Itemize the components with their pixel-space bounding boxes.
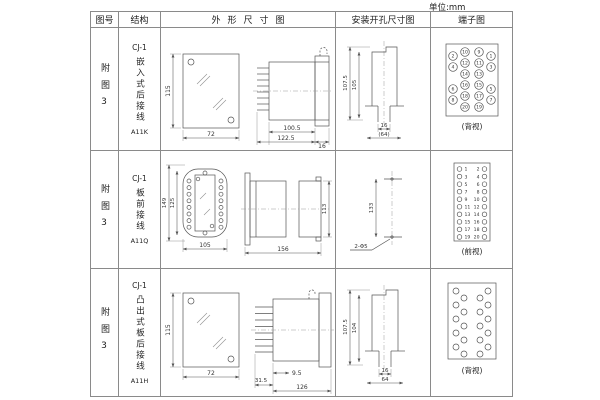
dim-outer-height-row1: 107.5	[343, 75, 349, 91]
terminal-pin	[482, 197, 487, 202]
outline-drawing-row2: 149 125 105 156 113	[161, 151, 335, 268]
terminal-number: 9	[478, 50, 481, 56]
terminal-number: 2	[452, 54, 455, 60]
terminal-pin	[482, 227, 487, 232]
dim-total-depth-row1: 122.5	[277, 135, 294, 142]
terminal-pin	[482, 167, 487, 172]
cutout-outline	[372, 290, 398, 351]
dim-front-height-row2: 149	[162, 197, 168, 208]
terminal-number: 3	[490, 65, 493, 71]
terminal-number: 6	[477, 182, 480, 188]
dim-body-depth-row1: 100.5	[283, 125, 300, 132]
dim-hole-spacing-row2: 133	[369, 202, 375, 213]
terminal-pin	[457, 204, 462, 209]
code-row2: A11Q	[131, 237, 149, 245]
dim-overall-width-row1: (64)	[378, 132, 389, 138]
mounting-cell-row1: 107.5 105 16 (64)	[336, 28, 431, 151]
dim-body-depth-row3: 126	[296, 384, 308, 391]
header-mounting: 安装开孔尺寸图	[336, 12, 431, 28]
dim-flange-width-row1: 16	[318, 143, 326, 150]
type-row2: 板前接线	[134, 188, 146, 232]
terminal-pin	[457, 220, 462, 225]
terminal-number: 10	[474, 197, 480, 203]
structure-row3: CJ-1 凸出式板后接线 A11H	[119, 269, 161, 397]
terminal-number: 10	[462, 50, 468, 56]
terminal-pin	[485, 302, 491, 308]
terminal-number: 12	[462, 61, 468, 67]
terminal-diagram-row3: (背视)	[431, 269, 512, 396]
terminal-cell-row2: 1357911131517192468101214161820 (前视)	[431, 151, 513, 269]
cutout-outline	[372, 47, 397, 106]
terminal-number: 4	[477, 174, 480, 180]
dim-front-width-row2: 105	[199, 242, 211, 249]
terminal-number: 16	[474, 220, 480, 226]
relay-cover-window	[195, 175, 215, 231]
terminal-number: 2	[477, 167, 480, 173]
header-figure-no: 图号	[91, 12, 119, 28]
dim-cutout-height-row3: 104	[352, 322, 358, 333]
dim-slot-width-row1: 16	[381, 123, 388, 129]
terminal-pin	[482, 174, 487, 179]
dim-outer-height-row3: 107.5	[343, 319, 349, 335]
terminal-pin	[482, 220, 487, 225]
terminal-number: 15	[465, 220, 471, 226]
terminal-number: 7	[490, 98, 493, 104]
terminal-number: 19	[465, 235, 471, 241]
type-row1: 嵌入式后接线	[133, 57, 145, 123]
dim-hole-callout-row2: 2-Φ5	[354, 244, 368, 250]
terminal-number: 16	[462, 83, 468, 89]
terminal-pin	[461, 351, 467, 357]
terminal-diagram-row1: 1012141618209111315171924681357 (背视)	[431, 28, 512, 150]
terminal-number: 17	[465, 227, 471, 233]
terminal-pin	[482, 204, 487, 209]
terminal-number: 18	[462, 94, 468, 100]
terminal-pin	[482, 212, 487, 217]
terminal-pin	[453, 344, 459, 350]
terminal-pin	[477, 309, 483, 315]
structure-row1: CJ-1 嵌入式后接线 A11K	[119, 28, 161, 151]
model-row2: CJ-1	[132, 174, 147, 183]
dim-slot-width-row3: 16	[382, 368, 389, 374]
figure-no-row2: 附图3	[91, 151, 119, 269]
terminal-number: 14	[462, 72, 468, 78]
terminal-number: 17	[476, 94, 482, 100]
terminal-pin	[485, 288, 491, 294]
terminal-pin	[485, 316, 491, 322]
mounting-cell-row3: 107.5 104 16 64	[336, 269, 431, 397]
terminal-circles: 1012141618209111315171924681357	[449, 48, 496, 112]
dim-rear-height-row2: 113	[322, 203, 328, 214]
terminal-pin	[482, 189, 487, 194]
terminal-pin	[485, 344, 491, 350]
terminal-pin	[457, 235, 462, 240]
hook-icon	[320, 48, 327, 57]
dim-front-height-row3: 115	[165, 324, 172, 336]
dim-front-width-row3: 72	[207, 370, 215, 377]
dim-front-height-row1: 115	[165, 85, 172, 97]
terminal-pin	[453, 330, 459, 336]
terminal-number: 1	[490, 54, 493, 60]
outline-cell-row3: 115 72 9.5 31.5 126	[161, 269, 336, 397]
terminal-view-label-row2: (前视)	[462, 246, 483, 256]
type-row3: 凸出式板后接线	[133, 295, 145, 372]
terminal-pin	[457, 212, 462, 217]
terminal-pin	[482, 182, 487, 187]
terminal-number: 5	[490, 87, 493, 93]
outline-drawing-row1: 115 72 100.5 122.5 16	[161, 28, 335, 150]
terminal-pin	[453, 316, 459, 322]
structure-row2: CJ-1 板前接线 A11Q	[119, 151, 161, 269]
terminal-number: 13	[476, 72, 482, 78]
outline-cell-row2: 149 125 105 156 113	[161, 151, 336, 269]
terminal-cell-row3: (背视)	[431, 269, 513, 397]
dim-pin-length-row3: 31.5	[255, 378, 268, 384]
terminal-pin	[453, 302, 459, 308]
terminal-number: 20	[474, 235, 480, 241]
dim-stub-row3: 9.5	[292, 370, 302, 377]
terminal-number: 14	[474, 212, 480, 218]
header-outline: 外形尺寸图	[161, 12, 336, 28]
dim-window-height-row2: 125	[170, 197, 176, 208]
terminal-number: 1	[465, 167, 468, 173]
hook-icon	[309, 290, 315, 299]
header-terminal: 端子图	[431, 12, 513, 28]
terminal-block-outline	[454, 163, 490, 241]
model-row3: CJ-1	[132, 281, 147, 290]
terminal-number: 19	[476, 105, 482, 111]
code-row3: A11H	[131, 377, 149, 385]
terminal-pin	[457, 189, 462, 194]
terminal-number: 12	[474, 204, 480, 210]
terminal-number: 20	[462, 105, 468, 111]
terminal-number: 5	[465, 182, 468, 188]
terminal-circles	[453, 288, 491, 357]
figure-no-row1: 附图3	[91, 28, 119, 151]
figure-no-row3: 附图3	[91, 269, 119, 397]
outline-cell-row1: 115 72 100.5 122.5 16	[161, 28, 336, 151]
terminal-pin	[461, 323, 467, 329]
terminal-pin	[477, 337, 483, 343]
terminal-number: 8	[452, 98, 455, 104]
mounting-drawing-row2: 133 2-Φ5	[336, 151, 430, 268]
dim-front-width-row1: 72	[207, 131, 215, 138]
terminal-pin	[461, 309, 467, 315]
terminal-pin	[457, 227, 462, 232]
mounting-drawing-row1: 107.5 105 16 (64)	[336, 28, 430, 150]
terminal-number: 9	[465, 197, 468, 203]
mounting-drawing-row3: 107.5 104 16 64	[336, 269, 430, 396]
terminal-number: 7	[465, 189, 468, 195]
terminal-view-label-row3: (背视)	[462, 365, 483, 375]
model-row1: CJ-1	[132, 43, 147, 52]
terminal-view-label-row1: (背视)	[462, 121, 483, 131]
terminal-number: 18	[474, 227, 480, 233]
terminal-number: 11	[476, 61, 482, 67]
terminal-number: 8	[477, 189, 480, 195]
terminal-pin	[457, 167, 462, 172]
terminal-circles: 1357911131517192468101214161820	[457, 167, 487, 241]
mounting-cell-row2: 133 2-Φ5	[336, 151, 431, 269]
terminal-pin	[453, 288, 459, 294]
terminal-number: 13	[465, 212, 471, 218]
terminal-pin	[461, 337, 467, 343]
terminal-pin	[477, 351, 483, 357]
terminal-pin	[461, 295, 467, 301]
code-row1: A11K	[131, 128, 148, 136]
terminal-diagram-row2: 1357911131517192468101214161820 (前视)	[431, 151, 512, 268]
dim-overall-width-row3: 64	[382, 377, 389, 383]
terminal-pin	[477, 323, 483, 329]
dim-total-depth-row2: 156	[277, 246, 289, 253]
terminal-pin	[457, 174, 462, 179]
terminal-number: 15	[476, 83, 482, 89]
terminal-number: 6	[452, 87, 455, 93]
terminal-number: 11	[465, 204, 471, 210]
outline-drawing-row3: 115 72 9.5 31.5 126	[161, 269, 335, 396]
terminal-pin	[457, 182, 462, 187]
terminal-number: 4	[452, 65, 455, 71]
terminal-pin	[485, 330, 491, 336]
terminal-cell-row1: 1012141618209111315171924681357 (背视)	[431, 28, 513, 151]
terminal-number: 3	[465, 174, 468, 180]
terminal-block-outline	[448, 283, 496, 359]
terminal-pin	[482, 235, 487, 240]
terminal-pin	[457, 197, 462, 202]
header-structure: 结构	[119, 12, 161, 28]
spec-table: 图号 结构 外形尺寸图 安装开孔尺寸图 端子图 附图3 CJ-1 嵌入式后接线 …	[90, 11, 513, 397]
dim-cutout-height-row1: 105	[352, 79, 358, 90]
terminal-pin	[477, 295, 483, 301]
